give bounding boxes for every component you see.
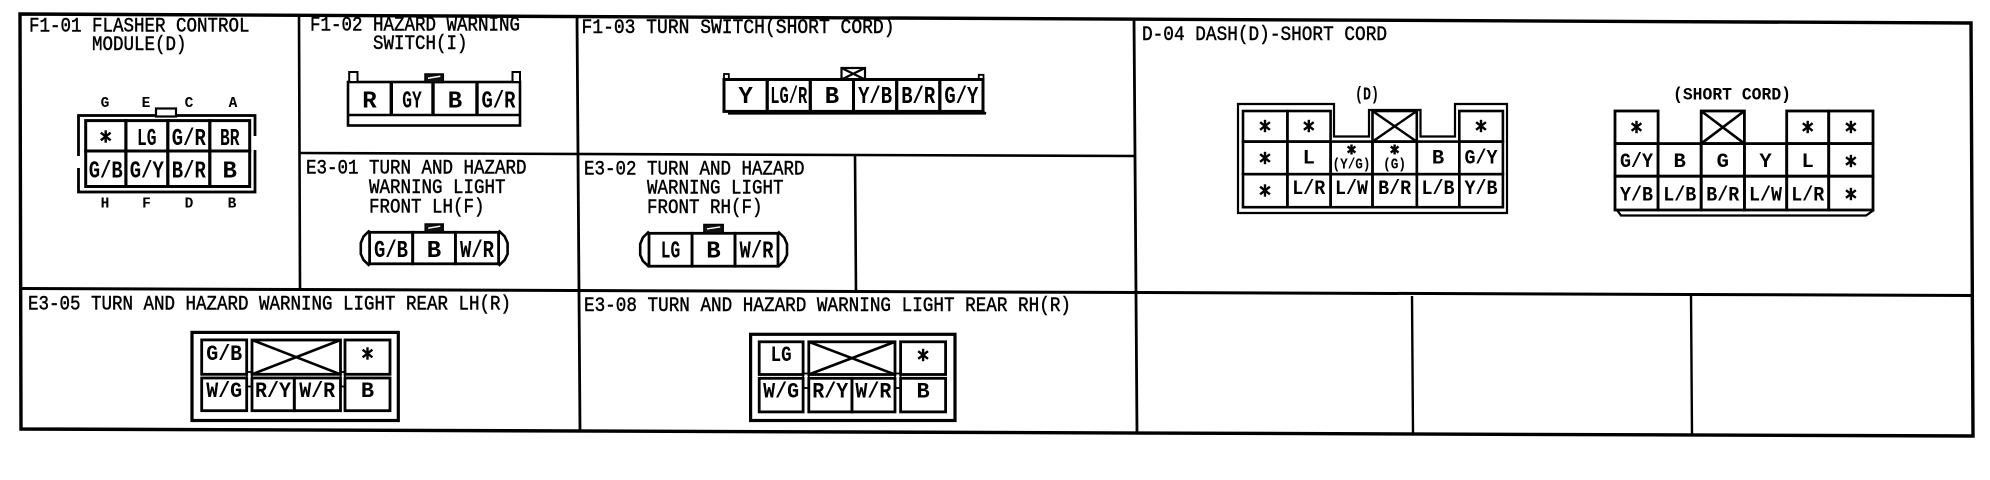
svg-text:B: B xyxy=(427,238,441,265)
svg-text:F1-03 TURN SWITCH(SHORT CORD): F1-03 TURN SWITCH(SHORT CORD) xyxy=(582,17,895,40)
svg-text:L: L xyxy=(1802,151,1814,174)
svg-text:FRONT LH(F): FRONT LH(F) xyxy=(369,197,485,220)
svg-text:L/B: L/B xyxy=(1663,185,1696,208)
svg-text:W/R: W/R xyxy=(460,238,494,265)
svg-text:E: E xyxy=(142,96,151,112)
svg-text:A: A xyxy=(229,96,238,112)
svg-text:L/R: L/R xyxy=(1791,185,1825,208)
svg-text:F: F xyxy=(142,197,151,213)
svg-text:W/G: W/G xyxy=(763,380,799,405)
svg-text:B: B xyxy=(825,84,839,111)
svg-text:B: B xyxy=(228,197,237,213)
svg-text:B/R: B/R xyxy=(1378,178,1412,201)
svg-text:B: B xyxy=(706,239,720,266)
svg-text:B: B xyxy=(448,89,462,116)
svg-text:(G): (G) xyxy=(1383,158,1406,174)
svg-text:B/R: B/R xyxy=(901,84,935,111)
svg-text:G/B: G/B xyxy=(374,238,408,265)
svg-text:B: B xyxy=(1432,148,1444,171)
svg-text:(Y/G): (Y/G) xyxy=(1333,158,1371,174)
svg-text:E3-05 TURN AND HAZARD WARNING: E3-05 TURN AND HAZARD WARNING LIGHT REAR… xyxy=(28,294,511,317)
svg-text:D: D xyxy=(185,197,194,213)
svg-text:W/G: W/G xyxy=(206,379,242,404)
svg-text:(D): (D) xyxy=(1355,86,1379,106)
svg-text:E3-08 TURN AND HAZARD WARNING: E3-08 TURN AND HAZARD WARNING LIGHT REAR… xyxy=(584,295,1071,318)
svg-text:G/R: G/R xyxy=(482,89,516,116)
svg-text:G/R: G/R xyxy=(172,126,206,153)
svg-text:Y: Y xyxy=(1759,151,1772,174)
svg-text:G/Y: G/Y xyxy=(130,159,164,186)
svg-text:GY: GY xyxy=(402,89,422,116)
svg-text:W/R: W/R xyxy=(855,380,892,405)
svg-text:G/Y: G/Y xyxy=(1620,151,1654,174)
svg-text:C: C xyxy=(185,96,194,112)
svg-text:FRONT RH(F): FRONT RH(F) xyxy=(647,197,763,220)
svg-text:SWITCH(I): SWITCH(I) xyxy=(373,33,468,56)
svg-text:(SHORT CORD): (SHORT CORD) xyxy=(1673,86,1791,106)
svg-text:Y/B: Y/B xyxy=(1465,178,1498,201)
svg-text:Y/B: Y/B xyxy=(858,84,892,111)
svg-text:MODULE(D): MODULE(D) xyxy=(92,34,187,57)
svg-text:R: R xyxy=(362,89,377,116)
svg-text:G: G xyxy=(101,96,110,112)
svg-text:G/B: G/B xyxy=(89,159,123,186)
svg-text:B: B xyxy=(1674,151,1686,174)
svg-text:LG: LG xyxy=(137,126,157,153)
svg-text:L/B: L/B xyxy=(1422,178,1455,201)
svg-text:L/W: L/W xyxy=(1749,185,1783,208)
svg-text:R/Y: R/Y xyxy=(812,380,849,405)
svg-text:L/R: L/R xyxy=(1292,178,1326,201)
svg-text:W/R: W/R xyxy=(299,379,336,404)
svg-text:L: L xyxy=(1303,148,1315,171)
svg-text:G/B: G/B xyxy=(206,342,242,367)
svg-text:LG: LG xyxy=(661,239,681,266)
svg-text:B: B xyxy=(222,159,236,186)
svg-text:L/W: L/W xyxy=(1335,178,1369,201)
svg-text:G/Y: G/Y xyxy=(1465,148,1499,171)
svg-text:H: H xyxy=(101,197,110,213)
svg-text:LG/R: LG/R xyxy=(770,84,807,111)
svg-text:Y: Y xyxy=(738,84,753,111)
svg-text:D-04 DASH(D)-SHORT CORD: D-04 DASH(D)-SHORT CORD xyxy=(1142,24,1387,47)
svg-text:LG: LG xyxy=(771,343,792,368)
svg-text:B/R: B/R xyxy=(172,159,206,186)
svg-text:W/R: W/R xyxy=(740,239,774,266)
svg-text:G: G xyxy=(1717,151,1729,174)
svg-text:R/Y: R/Y xyxy=(255,379,292,404)
svg-text:B: B xyxy=(916,380,929,405)
svg-text:G/Y: G/Y xyxy=(944,84,978,111)
svg-text:BR: BR xyxy=(220,126,240,153)
svg-text:Y/B: Y/B xyxy=(1620,185,1653,208)
svg-text:B: B xyxy=(361,379,374,404)
svg-text:B/R: B/R xyxy=(1706,185,1740,208)
